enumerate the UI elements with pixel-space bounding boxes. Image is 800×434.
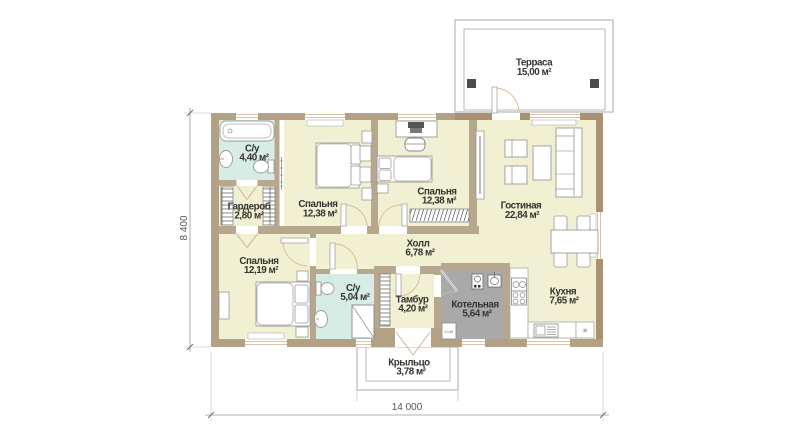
- svg-text:Сч.М.: Сч.М.: [444, 330, 453, 334]
- svg-text:5,04 м²: 5,04 м²: [340, 292, 370, 303]
- svg-text:3,78 м²: 3,78 м²: [396, 367, 426, 378]
- svg-text:4,20 м²: 4,20 м²: [398, 304, 428, 315]
- svg-text:15,00 м²: 15,00 м²: [517, 67, 552, 78]
- svg-text:14 000: 14 000: [392, 402, 423, 413]
- svg-text:4,40 м²: 4,40 м²: [239, 153, 269, 164]
- svg-text:12,38 м²: 12,38 м²: [422, 196, 457, 207]
- svg-text:12,19 м²: 12,19 м²: [244, 265, 279, 276]
- svg-text:✳: ✳: [582, 327, 588, 335]
- svg-text:12,38 м²: 12,38 м²: [303, 209, 338, 220]
- svg-text:2,80 м²: 2,80 м²: [234, 211, 264, 222]
- svg-text:6,78 м²: 6,78 м²: [405, 248, 435, 259]
- svg-text:5,64 м²: 5,64 м²: [462, 309, 492, 320]
- svg-text:22,84 м²: 22,84 м²: [505, 210, 540, 221]
- svg-text:8 400: 8 400: [179, 215, 190, 240]
- svg-text:7,65 м²: 7,65 м²: [549, 296, 579, 307]
